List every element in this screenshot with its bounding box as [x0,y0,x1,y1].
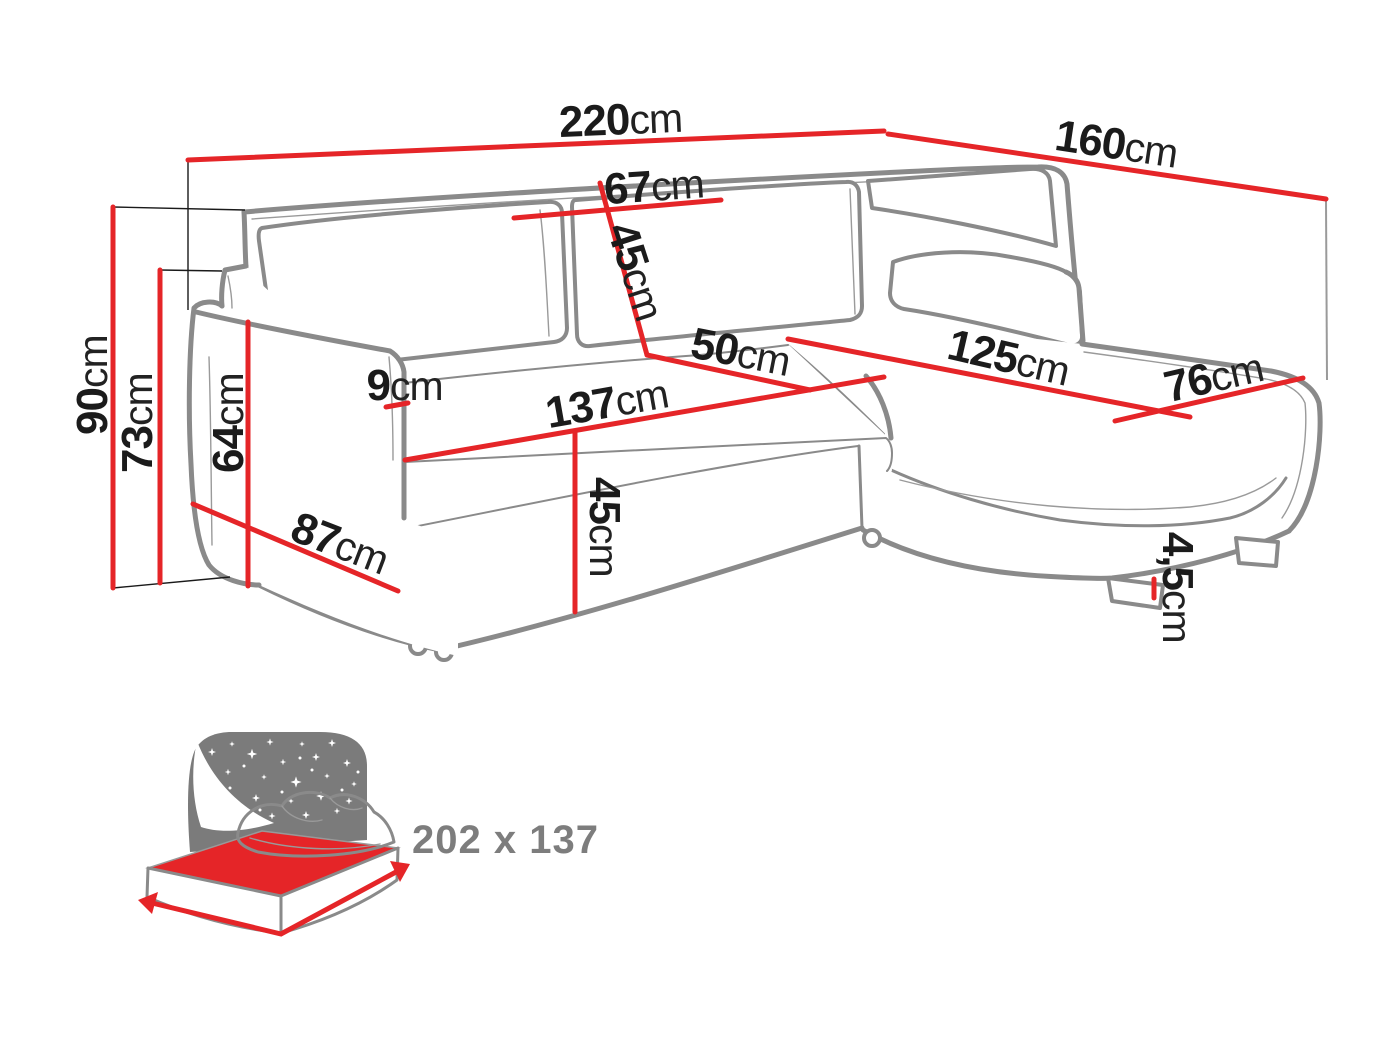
diagram-page: 220 cm 160 cm 90 cm 73 cm 64 cm 9 cm 67 … [0,0,1400,1050]
dim-unit: cm [628,95,683,143]
dim-value: 73 [113,426,162,473]
dim-label-arm-front-height: 64 cm [204,373,253,473]
dim-unit: cm [206,373,252,426]
dim-value: 64 [204,424,253,472]
dim-label-back-width: 220 cm [558,93,683,147]
sleeping-area-size: 202 x 137 [412,818,599,862]
dim-unit: cm [390,363,443,409]
ext-armrest-top [160,270,222,271]
dim-value: 90 [68,388,117,435]
dim-label-armrest-height: 73 cm [113,373,162,473]
dim-unit: cm [612,370,672,424]
dim-value: 4,5 [1153,532,1202,591]
dim-unit: cm [115,373,161,426]
dim-label-leg-height: 4,5 cm [1153,532,1202,643]
dim-label-cushion-width: 67 cm [602,158,705,214]
dim-unit: cm [581,524,627,577]
sofa-backrest-left-edge [244,212,246,267]
dim-label-seat-height: 45 cm [580,477,629,577]
sofa-caster-wheel [864,530,880,546]
sofa-dimensions-diagram: 220 cm 160 cm 90 cm 73 cm 64 cm 9 cm 67 … [0,0,1400,1050]
chaise-foot-right [1236,538,1278,566]
dim-unit: cm [70,335,116,388]
dim-unit: cm [1122,123,1181,176]
dim-unit: cm [649,160,705,210]
dim-value: 67 [602,162,652,214]
dim-value: 220 [558,95,630,147]
dim-unit: cm [1154,590,1200,643]
dim-value: 160 [1052,111,1129,170]
dim-label-arm-width: 9 cm [367,361,443,410]
dim-value: 9 [367,361,390,410]
dropline-right [1326,201,1327,380]
dim-label-total-height: 90 cm [68,335,117,435]
dim-value: 45 [580,477,629,524]
